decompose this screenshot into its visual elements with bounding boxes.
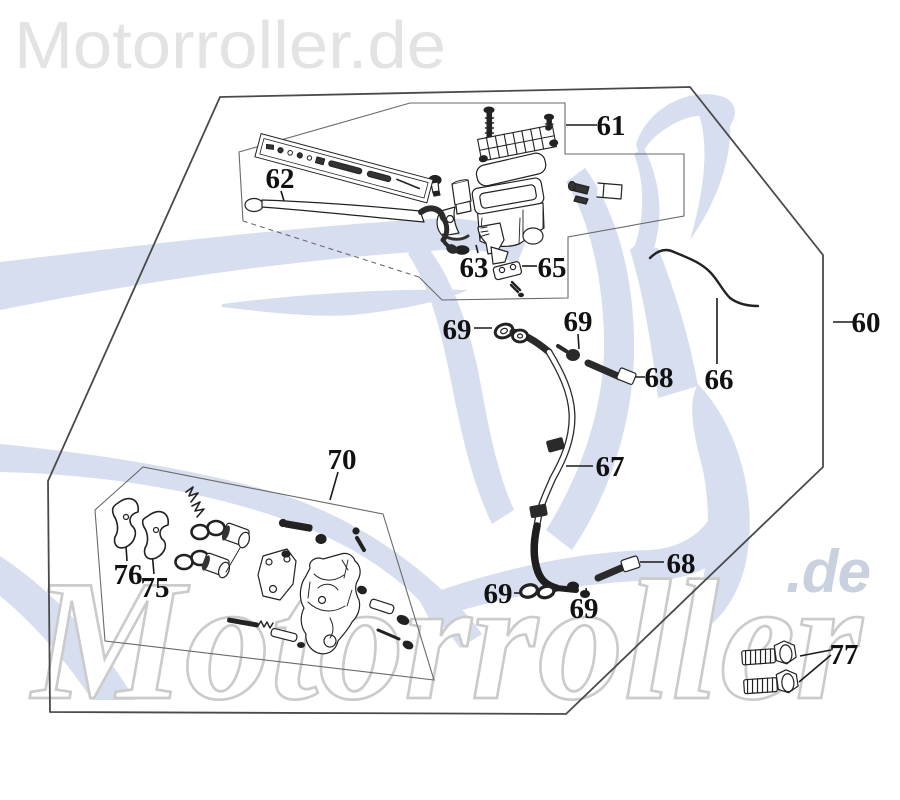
svg-text:69: 69 bbox=[443, 314, 472, 346]
svg-text:63: 63 bbox=[460, 252, 489, 284]
svg-text:68: 68 bbox=[667, 548, 696, 580]
svg-text:Motorroller.de: Motorroller.de bbox=[14, 8, 446, 83]
svg-text:62: 62 bbox=[266, 163, 295, 195]
svg-text:75: 75 bbox=[141, 572, 170, 604]
svg-text:.de: .de bbox=[786, 538, 871, 605]
svg-text:65: 65 bbox=[538, 252, 567, 284]
svg-text:69: 69 bbox=[484, 578, 513, 610]
svg-text:60: 60 bbox=[852, 307, 881, 339]
svg-text:61: 61 bbox=[597, 110, 626, 142]
svg-text:70: 70 bbox=[328, 444, 357, 476]
svg-text:68: 68 bbox=[645, 362, 674, 394]
svg-text:67: 67 bbox=[596, 451, 625, 483]
svg-text:66: 66 bbox=[705, 364, 734, 396]
svg-text:77: 77 bbox=[830, 639, 859, 671]
svg-text:76: 76 bbox=[114, 559, 143, 591]
svg-text:69: 69 bbox=[564, 306, 593, 338]
